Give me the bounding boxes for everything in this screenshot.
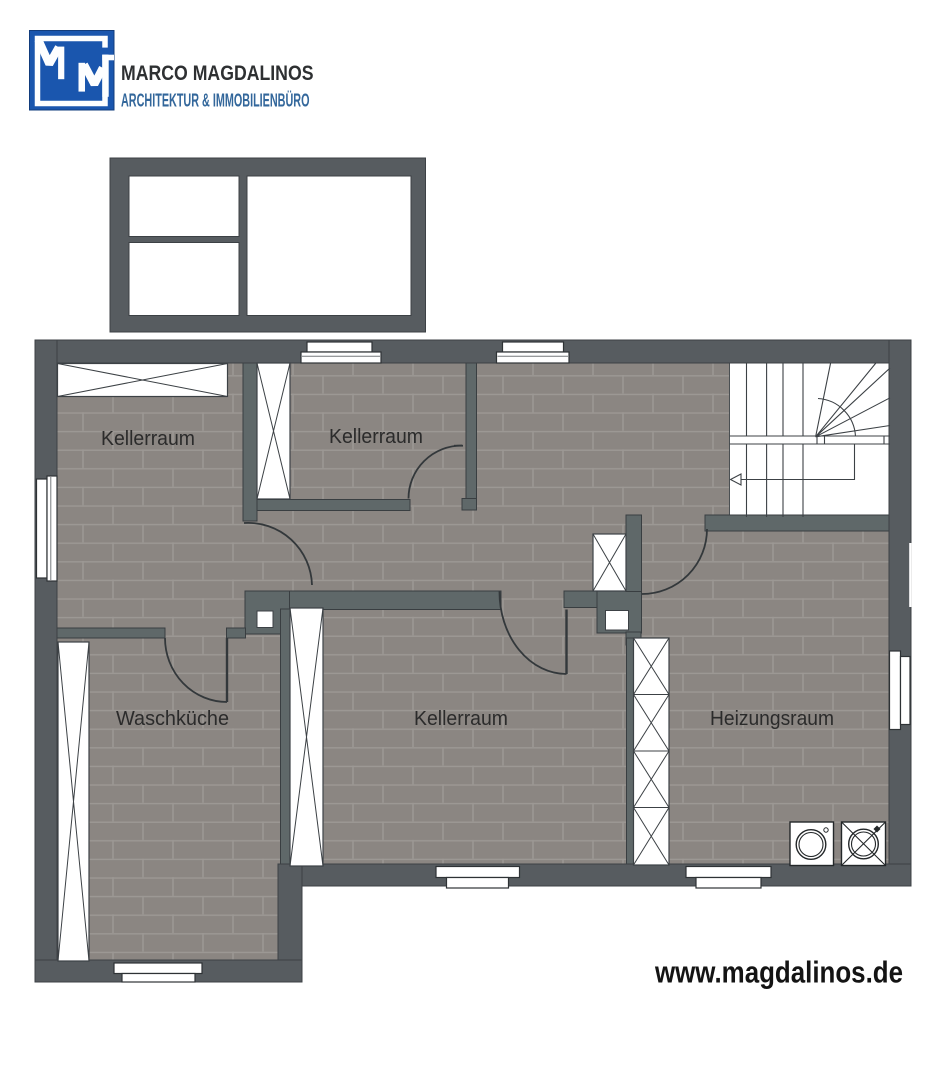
svg-text:Kellerraum: Kellerraum — [101, 427, 195, 450]
svg-text:MARCO MAGDALINOS: MARCO MAGDALINOS — [121, 62, 314, 85]
svg-text:ARCHITEKTUR & IMMOBILIENBÜRO: ARCHITEKTUR & IMMOBILIENBÜRO — [121, 91, 310, 111]
svg-text:Kellerraum: Kellerraum — [414, 707, 508, 730]
svg-text:Heizungsraum: Heizungsraum — [710, 707, 834, 730]
svg-text:Kellerraum: Kellerraum — [329, 425, 423, 448]
svg-text:Waschküche: Waschküche — [116, 707, 229, 730]
svg-text:www.magdalinos.de: www.magdalinos.de — [654, 955, 903, 990]
